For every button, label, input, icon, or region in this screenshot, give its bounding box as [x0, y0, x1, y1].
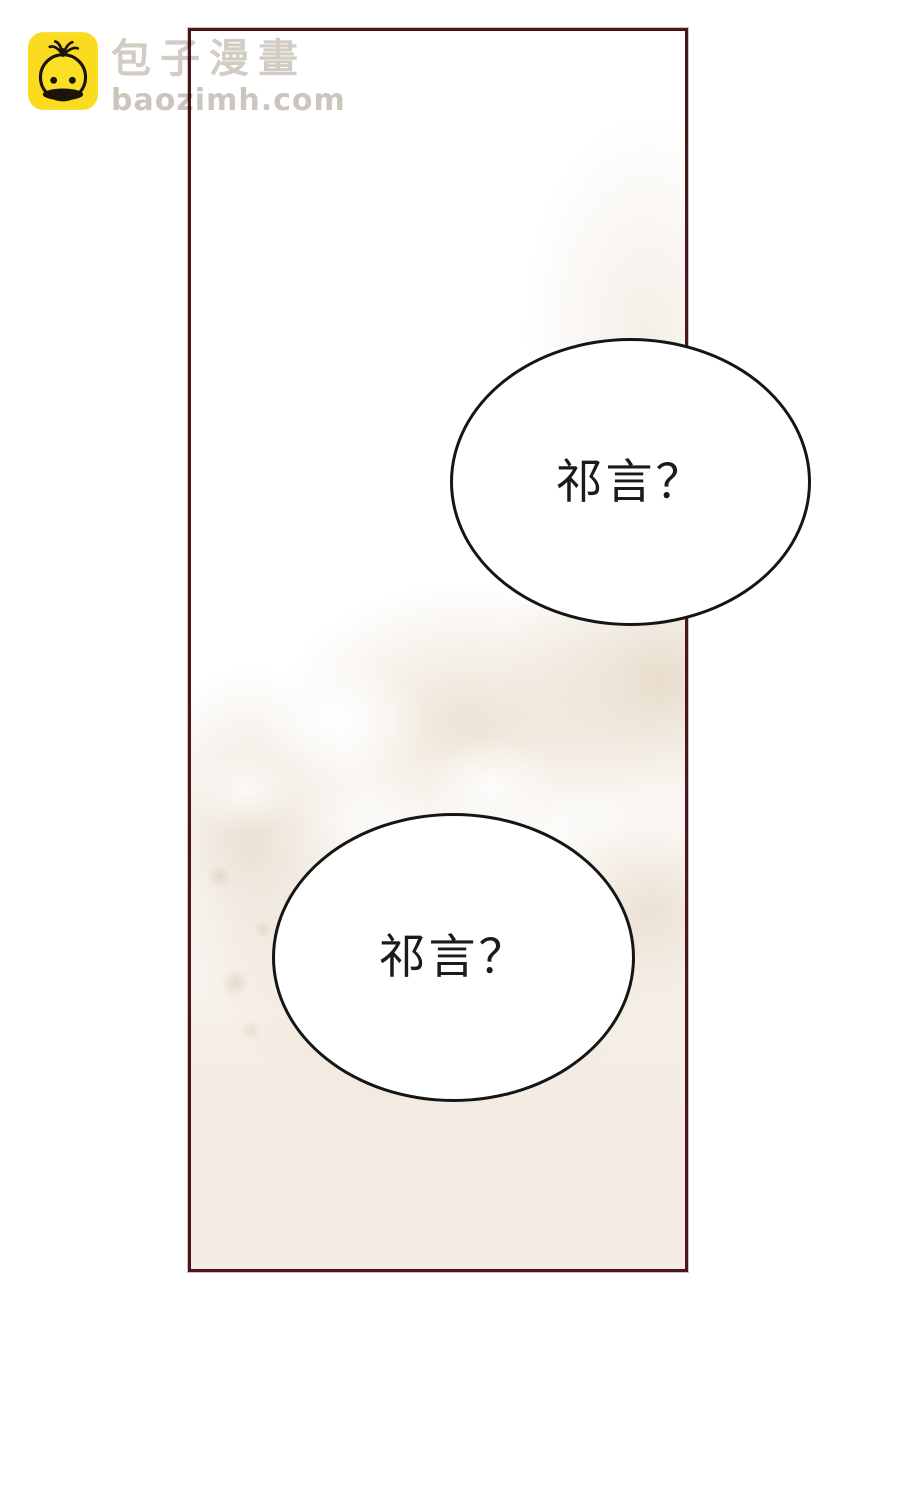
speech-bubble-2-text: 祁言？	[379, 934, 529, 981]
speech-bubble-2: 祁言？	[272, 813, 635, 1102]
page-background: 包子漫畫 baozimh.com 祁言？ 祁言？	[0, 0, 900, 1505]
baozi-logo-icon	[28, 32, 98, 110]
speech-bubble-1: 祁言？	[450, 338, 811, 626]
speech-bubble-1-text: 祁言？	[556, 459, 706, 506]
